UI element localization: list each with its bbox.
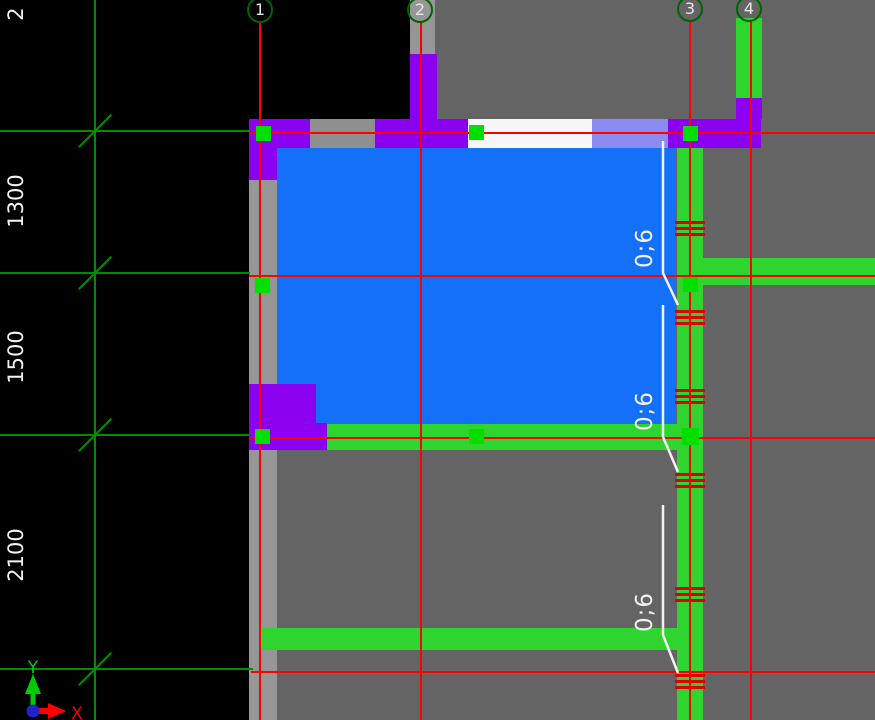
plan-canvas: 1 2 3 4 2 1300 1500 2100 0;6 0;6 0;6 Y X <box>0 0 875 720</box>
rebar-leader-line[interactable] <box>663 305 678 472</box>
axis-origin-dot <box>27 705 40 718</box>
axis-y-label: Y <box>27 658 39 678</box>
axis-triad: Y X <box>25 658 83 720</box>
annotation-overlay: Y X <box>0 0 875 720</box>
rebar-leader-line[interactable] <box>663 141 678 305</box>
axis-x-label: X <box>71 704 83 720</box>
rebar-leader-line[interactable] <box>663 505 678 673</box>
axis-x-arrow-head <box>48 703 66 719</box>
